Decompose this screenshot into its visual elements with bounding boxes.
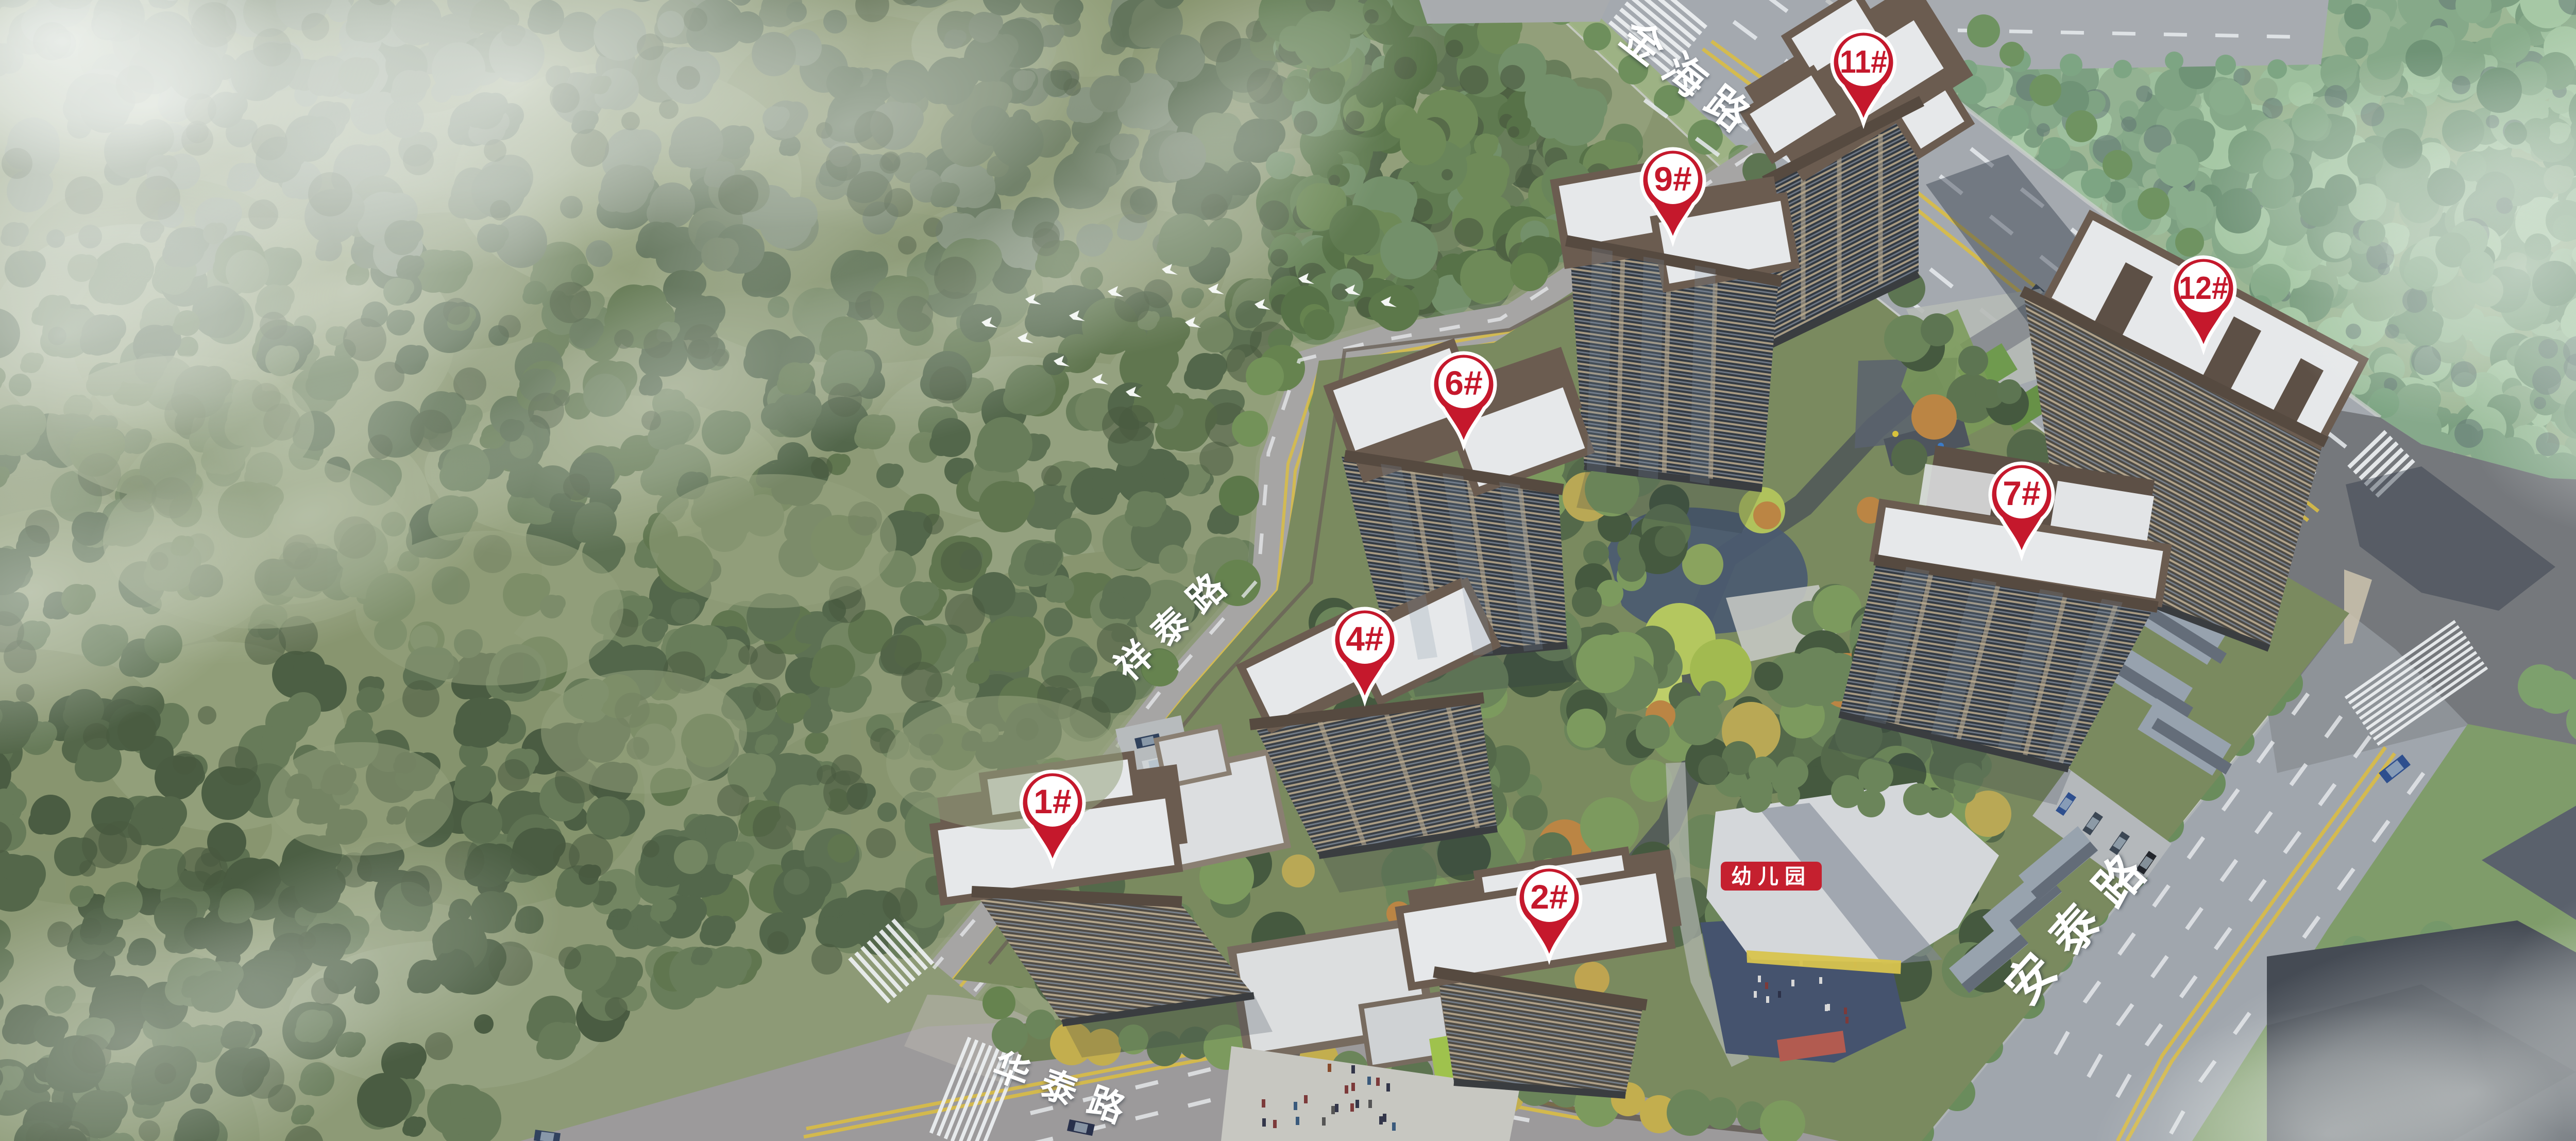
svg-text:1#: 1# bbox=[1033, 782, 1071, 820]
svg-text:幼儿园: 幼儿园 bbox=[1731, 865, 1811, 888]
svg-text:11#: 11# bbox=[1840, 44, 1887, 80]
svg-text:2#: 2# bbox=[1530, 878, 1568, 916]
svg-text:6#: 6# bbox=[1445, 364, 1482, 402]
svg-text:4#: 4# bbox=[1346, 619, 1383, 658]
svg-text:9#: 9# bbox=[1654, 160, 1691, 198]
svg-text:12#: 12# bbox=[2179, 271, 2228, 306]
svg-text:7#: 7# bbox=[2003, 474, 2040, 512]
